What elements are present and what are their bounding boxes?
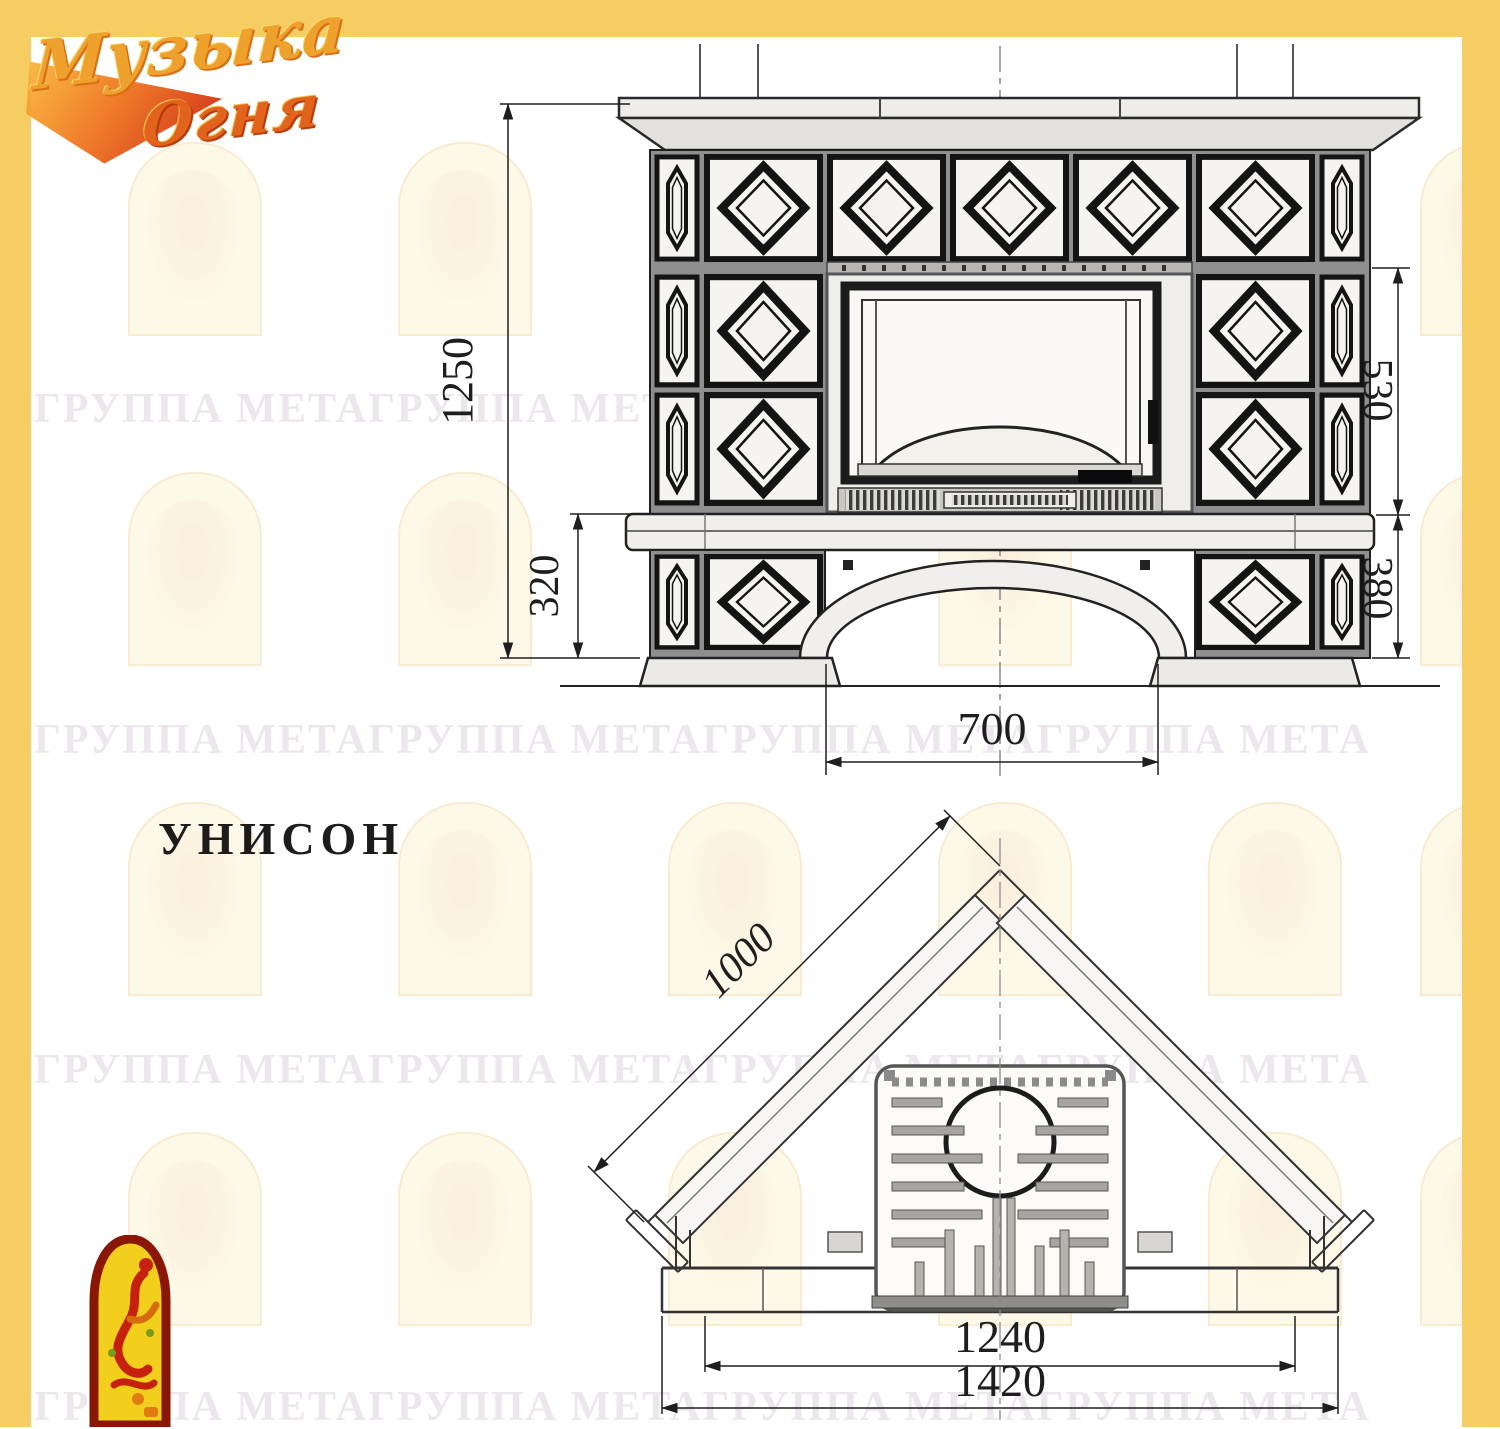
dim-label-firebox-height: 530 (1354, 359, 1400, 422)
base-arch-section (650, 550, 1370, 658)
firebox (827, 262, 1192, 512)
plan-view-drawing: 1000 1240 1420 (588, 810, 1374, 1420)
base-arch (800, 561, 1186, 658)
dimension-total-height (500, 104, 640, 658)
door-handle (1078, 470, 1132, 483)
dim-label-flank-depth: 1000 (693, 915, 785, 1007)
dim-label-plinth-height: 320 (522, 555, 568, 618)
mantel-shelf (626, 514, 1374, 550)
front-elevation-drawing: 1250 320 530 380 700 (433, 44, 1440, 778)
dim-label-total-height: 1250 (433, 337, 482, 425)
cornice (619, 98, 1419, 150)
dim-label-arch-width: 700 (958, 703, 1027, 754)
door-latch (1148, 400, 1158, 444)
page-root: { "frame": { "color": "#f5cd62" }, "logo… (0, 0, 1500, 1427)
chimney-lines (700, 44, 1293, 100)
technical-drawing: 1250 320 530 380 700 (0, 0, 1500, 1427)
dim-label-base-height: 380 (1354, 557, 1400, 620)
dim-label-overall-width: 1420 (954, 1355, 1046, 1406)
